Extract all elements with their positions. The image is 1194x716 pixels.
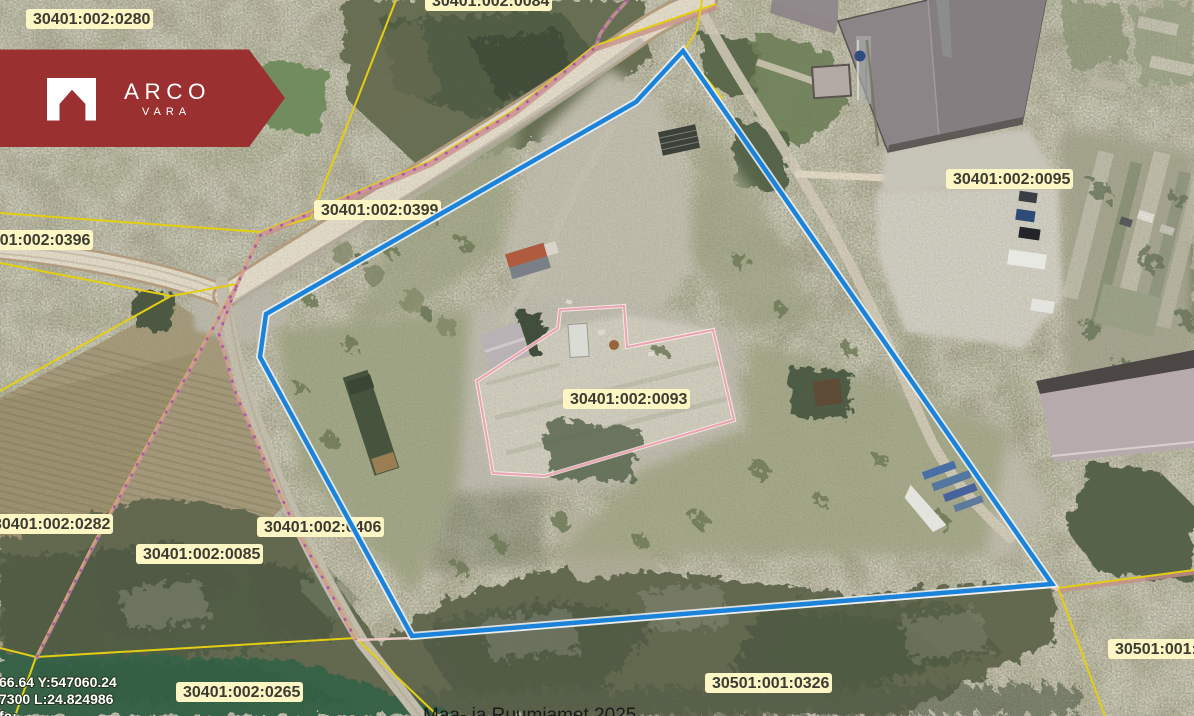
- svg-text:7300 L:24.824986: 7300 L:24.824986: [0, 691, 114, 707]
- svg-text:66.64 Y:547060.24: 66.64 Y:547060.24: [0, 674, 117, 690]
- svg-text:30401:002:0095: 30401:002:0095: [953, 171, 1071, 188]
- svg-text:30501:001:0326: 30501:001:0326: [712, 675, 830, 692]
- svg-text:ARCO: ARCO: [124, 79, 211, 104]
- svg-text:30401:002:0265: 30401:002:0265: [183, 684, 301, 701]
- svg-text:fo:: fo:: [0, 708, 17, 716]
- svg-text:30401:002:0399: 30401:002:0399: [321, 202, 439, 219]
- svg-text:VARA: VARA: [142, 106, 191, 118]
- svg-text:30401:002:0093: 30401:002:0093: [570, 391, 688, 408]
- svg-text:Maa- ja Ruumiamet 2025: Maa- ja Ruumiamet 2025: [423, 705, 636, 716]
- svg-text:30401:002:0406: 30401:002:0406: [264, 519, 382, 536]
- svg-text:30401:002:0085: 30401:002:0085: [143, 546, 261, 563]
- svg-text:30401:002:0084: 30401:002:0084: [432, 0, 550, 10]
- svg-text:30401:002:0280: 30401:002:0280: [33, 11, 151, 28]
- svg-text:30501:001:0326: 30501:001:0326: [1115, 641, 1194, 658]
- svg-text:30401:002:0282: 30401:002:0282: [0, 516, 111, 533]
- svg-text:30401:002:0396: 30401:002:0396: [0, 232, 91, 249]
